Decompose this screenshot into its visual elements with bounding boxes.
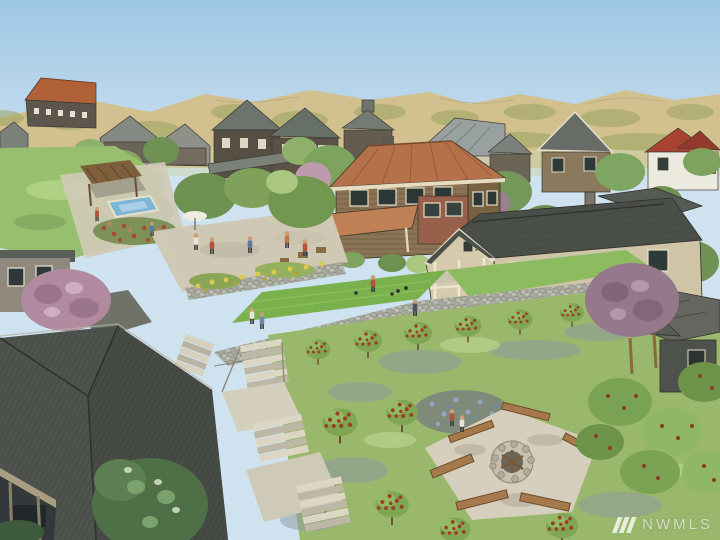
purple-blossom-tree [585, 263, 679, 337]
watermark: NWMLS [612, 516, 713, 533]
nwmls-logo-icon [612, 517, 639, 533]
pink-blossom-tree [21, 269, 111, 331]
rendering-canvas: NWMLS [0, 0, 720, 540]
watermark-text: NWMLS [642, 516, 713, 533]
watercolor-illustration [0, 0, 720, 540]
barn [25, 78, 96, 128]
